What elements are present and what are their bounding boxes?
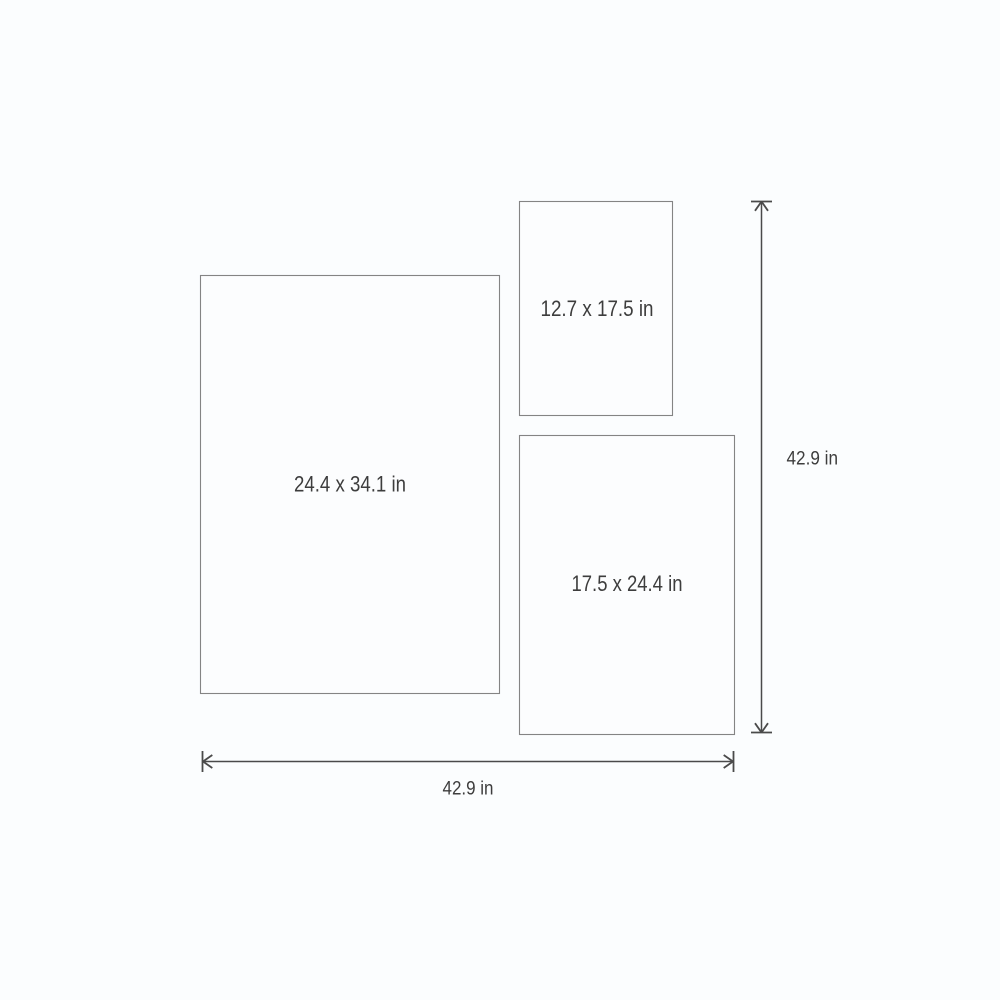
svg-text:24.4 x 34.1 in: 24.4 x 34.1 in xyxy=(294,472,406,497)
svg-text:17.5 x 24.4 in: 17.5 x 24.4 in xyxy=(572,571,683,596)
svg-text:12.7 x 17.5 in: 12.7 x 17.5 in xyxy=(541,296,654,321)
svg-text:42.9 in: 42.9 in xyxy=(787,448,839,470)
svg-text:42.9 in: 42.9 in xyxy=(443,778,494,800)
